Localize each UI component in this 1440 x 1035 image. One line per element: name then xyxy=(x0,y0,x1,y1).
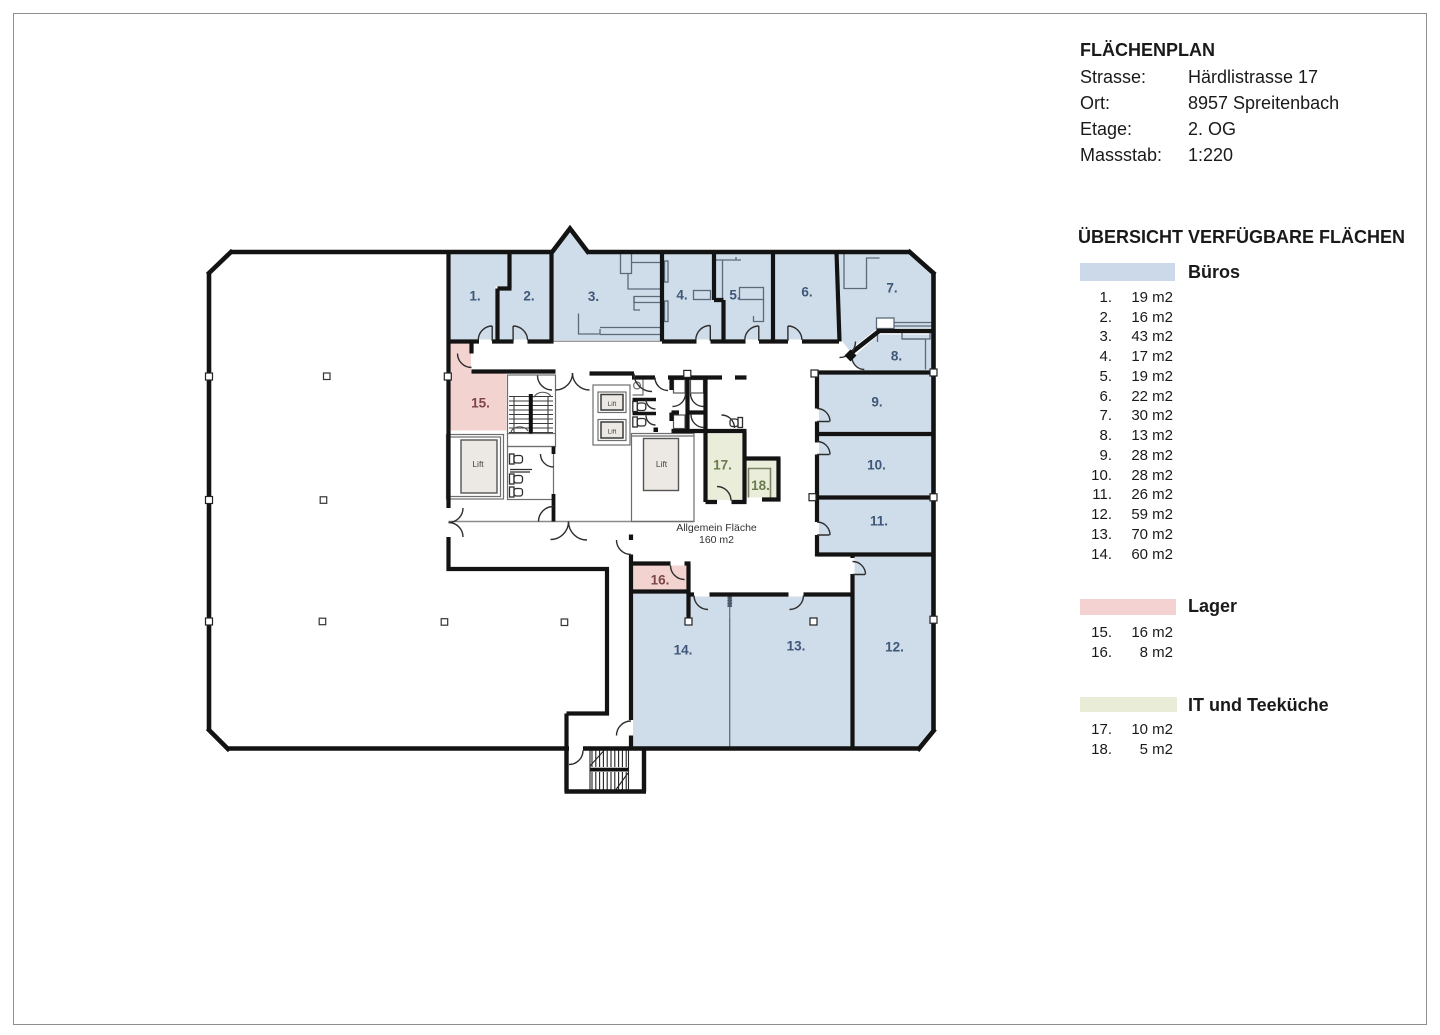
svg-text:3.: 3. xyxy=(588,289,599,304)
svg-text:13.: 13. xyxy=(787,639,806,654)
svg-text:16.: 16. xyxy=(651,573,670,588)
svg-text:15.: 15. xyxy=(471,396,490,411)
svg-text:Lift: Lift xyxy=(472,459,484,469)
svg-text:9.: 9. xyxy=(871,395,882,410)
svg-text:2.: 2. xyxy=(523,289,534,304)
svg-text:5.: 5. xyxy=(729,288,740,303)
svg-text:4.: 4. xyxy=(676,288,687,303)
svg-text:Lift: Lift xyxy=(656,459,668,469)
svg-text:Allgemein Fläche: Allgemein Fläche xyxy=(676,522,757,534)
svg-text:18.: 18. xyxy=(751,478,770,493)
svg-text:Lift: Lift xyxy=(608,429,617,436)
svg-text:Lift: Lift xyxy=(608,401,617,408)
svg-text:7.: 7. xyxy=(886,281,897,296)
svg-text:6.: 6. xyxy=(801,285,812,300)
svg-text:10.: 10. xyxy=(867,458,886,473)
svg-text:11.: 11. xyxy=(870,514,888,529)
svg-text:8.: 8. xyxy=(891,349,902,364)
svg-text:1.: 1. xyxy=(469,289,480,304)
svg-text:12.: 12. xyxy=(885,640,904,655)
svg-text:14.: 14. xyxy=(674,643,693,658)
svg-text:17.: 17. xyxy=(713,458,732,473)
svg-text:160 m2: 160 m2 xyxy=(699,534,734,546)
